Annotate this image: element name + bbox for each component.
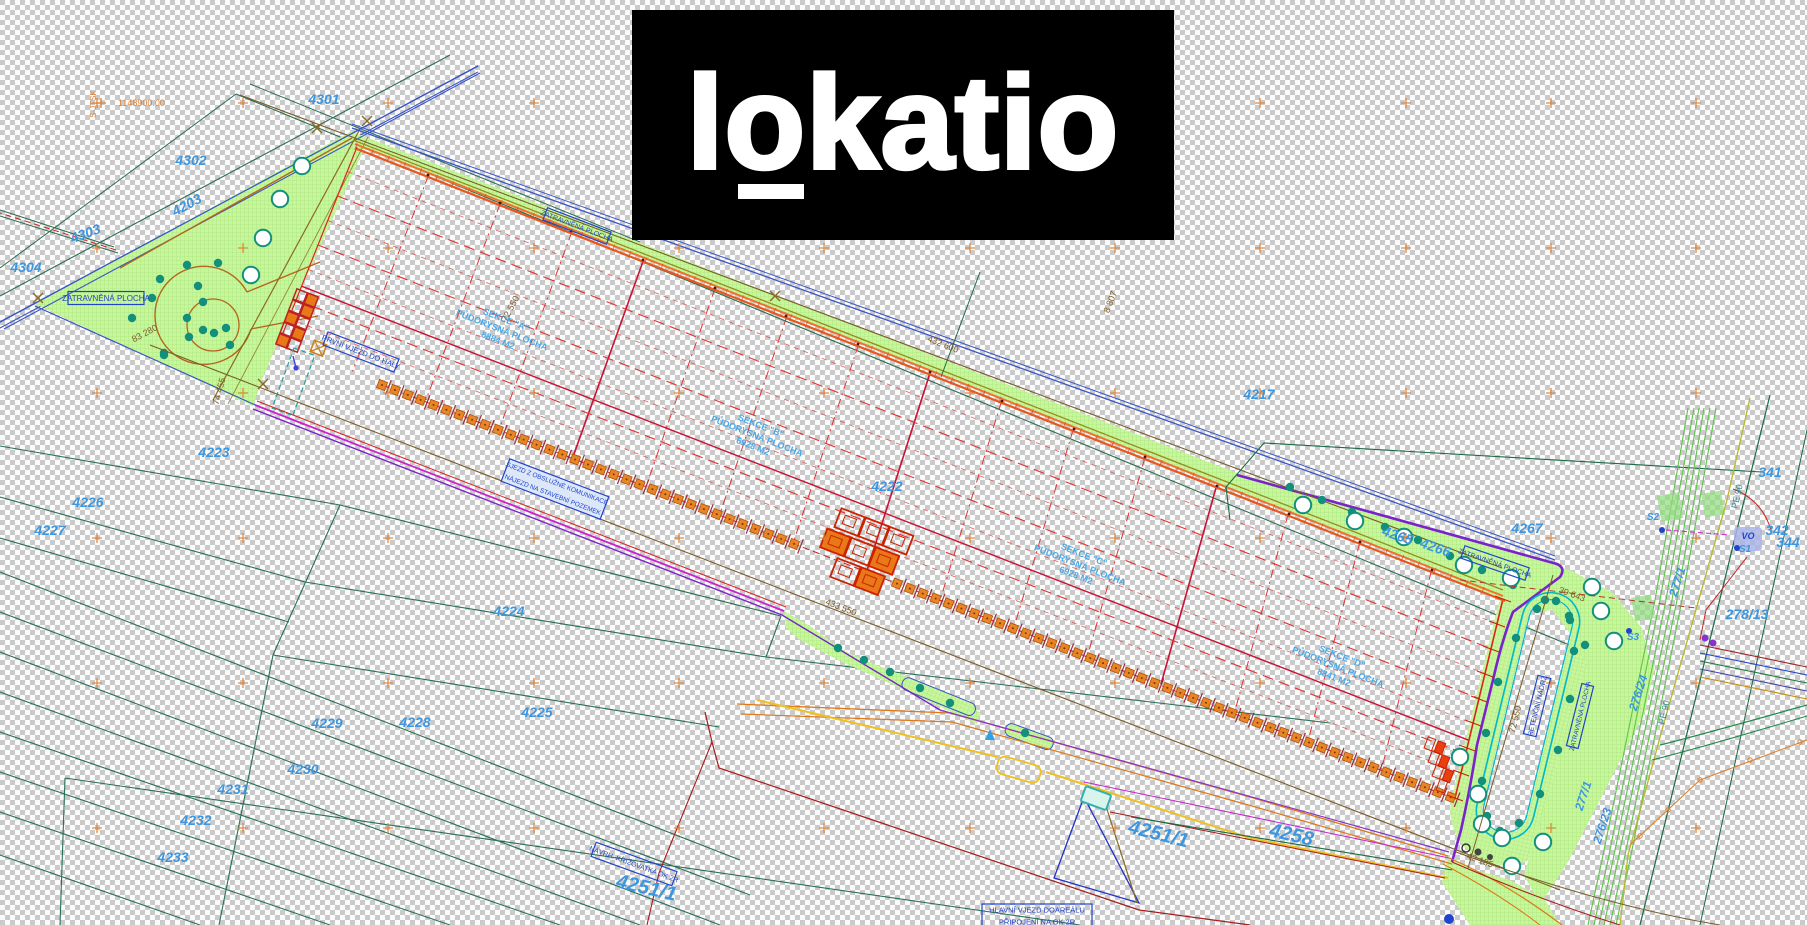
svg-text:4222: 4222 xyxy=(870,478,902,494)
svg-text:4224: 4224 xyxy=(492,603,524,619)
svg-text:4228: 4228 xyxy=(398,714,430,730)
svg-text:S2: S2 xyxy=(1647,512,1660,523)
svg-text:4226: 4226 xyxy=(71,494,103,510)
svg-text:S1: S1 xyxy=(1739,544,1752,555)
svg-text:4232: 4232 xyxy=(179,812,211,828)
svg-text:4304: 4304 xyxy=(9,259,41,275)
svg-text:S-JTSK: S-JTSK xyxy=(89,90,98,118)
svg-text:4217: 4217 xyxy=(1242,386,1275,402)
svg-text:4302: 4302 xyxy=(174,152,206,168)
svg-text:VO: VO xyxy=(1741,531,1754,541)
svg-text:4223: 4223 xyxy=(197,444,229,460)
svg-text:S3: S3 xyxy=(1627,632,1640,643)
svg-text:HLAVNÍ VJEZD DOAREÁLU: HLAVNÍ VJEZD DOAREÁLU xyxy=(989,906,1085,915)
svg-text:4267: 4267 xyxy=(1510,520,1543,536)
svg-text:4233: 4233 xyxy=(156,849,188,865)
svg-text:4229: 4229 xyxy=(310,715,342,731)
svg-text:341: 341 xyxy=(1758,464,1782,480)
svg-text:4230: 4230 xyxy=(286,761,318,777)
svg-text:ZATRAVNĚNÁ PLOCHA: ZATRAVNĚNÁ PLOCHA xyxy=(62,294,150,303)
svg-text:4227: 4227 xyxy=(33,522,66,538)
svg-text:278/13: 278/13 xyxy=(1725,606,1769,622)
svg-text:lokatio: lokatio xyxy=(687,49,1119,196)
svg-text:344: 344 xyxy=(1776,534,1800,550)
svg-text:4301: 4301 xyxy=(307,91,339,107)
svg-text:PŘIPOJENÍ NA OK 2R: PŘIPOJENÍ NA OK 2R xyxy=(999,918,1076,925)
svg-text:1148900.00: 1148900.00 xyxy=(118,98,165,108)
svg-text:4225: 4225 xyxy=(520,704,552,720)
svg-text:4231: 4231 xyxy=(216,781,248,797)
